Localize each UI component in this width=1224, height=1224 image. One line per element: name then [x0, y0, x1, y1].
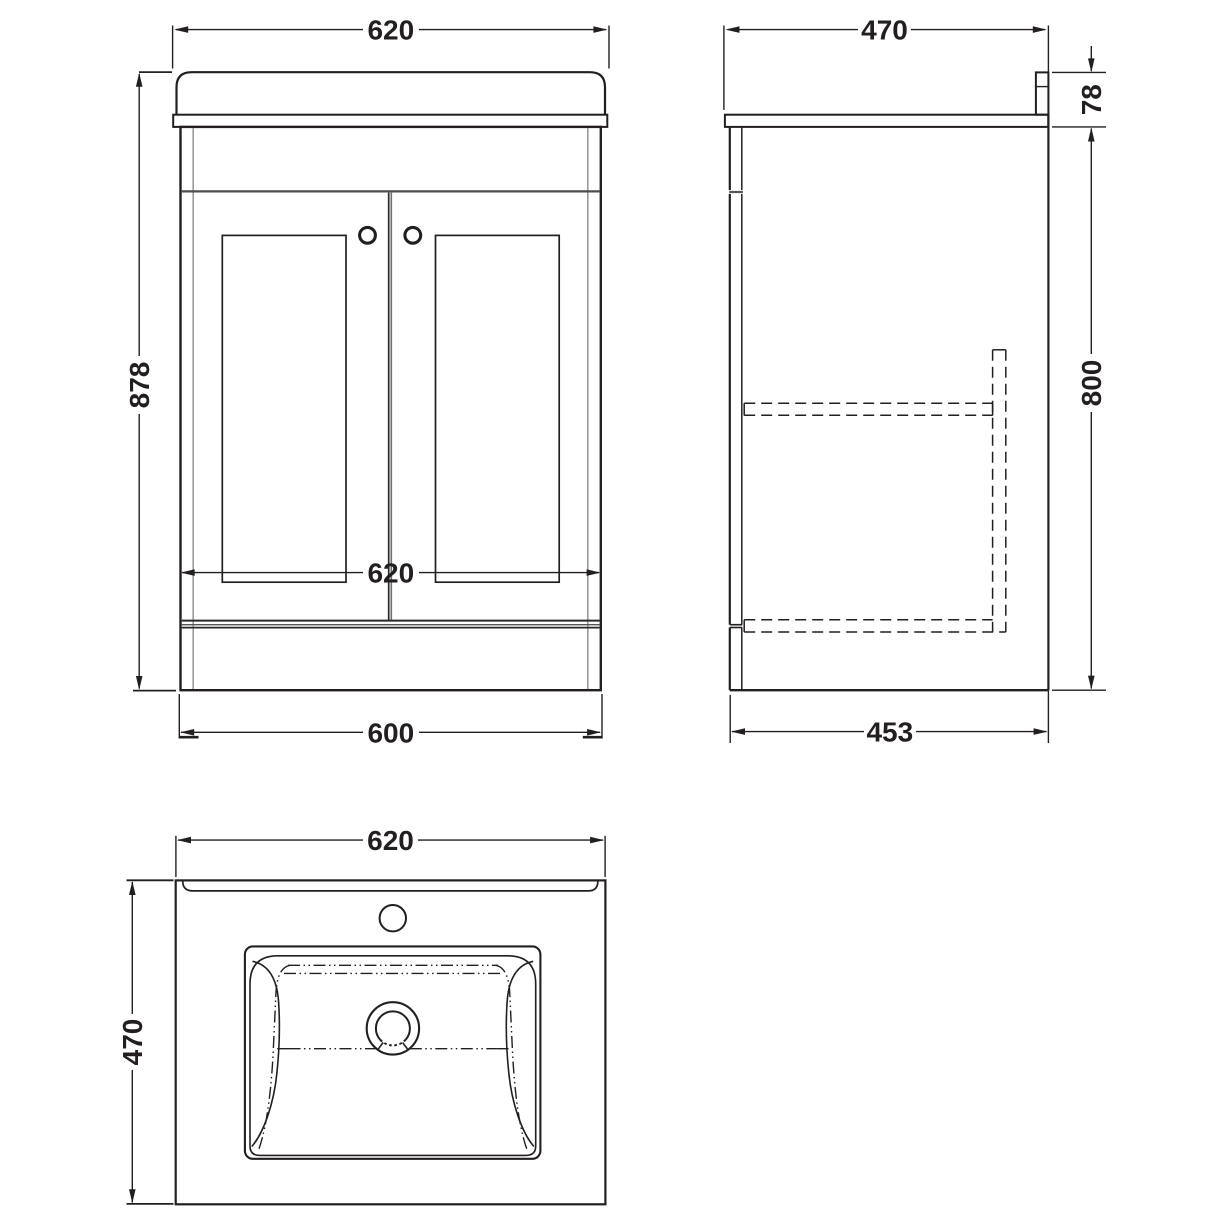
svg-text:470: 470	[117, 1019, 148, 1066]
svg-text:620: 620	[367, 15, 414, 46]
svg-text:453: 453	[866, 717, 913, 748]
svg-text:620: 620	[367, 825, 414, 856]
svg-text:878: 878	[124, 362, 155, 409]
svg-text:470: 470	[861, 15, 908, 46]
svg-text:800: 800	[1076, 360, 1107, 407]
svg-text:620: 620	[367, 558, 414, 589]
svg-text:78: 78	[1076, 84, 1107, 115]
svg-text:600: 600	[367, 717, 414, 748]
